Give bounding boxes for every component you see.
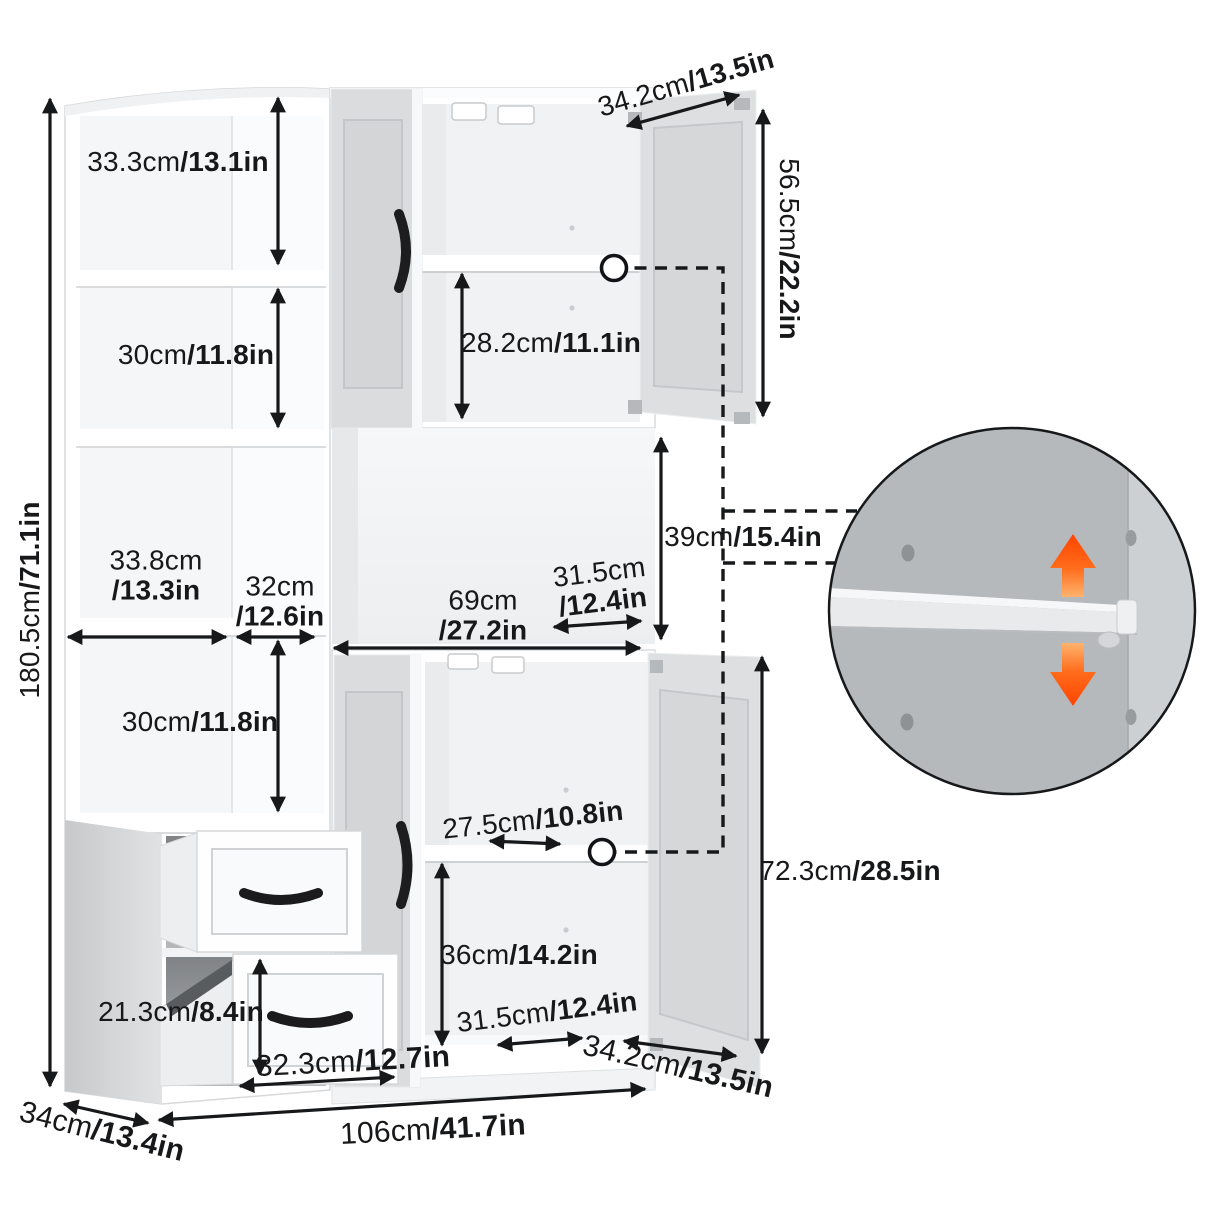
hinge-icon [650, 660, 663, 673]
dim-value-in: /12.6in [236, 601, 325, 631]
dim-value-cm: 106cm [339, 1113, 432, 1151]
shelf-pin-marker-icon [590, 840, 615, 865]
shelf-pin-marker-icon [602, 256, 627, 281]
tower-side-panel [65, 820, 162, 1104]
dim-fourth-shelf-space-label: 30cm/11.8in [122, 707, 278, 737]
dim-value-in: /14.2in [509, 939, 598, 970]
shelf-pin-hole-icon [1126, 530, 1137, 546]
dim-top-cabinet-height-label: 56.5cm/22.2in [774, 158, 804, 340]
dim-value-cm: 36cm [440, 939, 509, 970]
dimension-diagram-page: 180.5cm/71.1in 33.3cm/13.1in 30cm/11.8in… [0, 0, 1214, 1214]
dim-value-cm: 32cm [236, 571, 325, 601]
dim-second-shelf-space-label: 30cm/11.8in [118, 340, 274, 370]
dim-upper-shelf-space-label: 33.3cm/13.1in [87, 147, 269, 177]
dim-hutch-opening-height-label: 39cm/15.4in [664, 522, 822, 552]
dim-value-cm: 32.3cm [255, 1045, 356, 1083]
dim-right-cubby-width-label: 32cm/12.6in [236, 571, 325, 630]
dim-value-in: /15.4in [733, 521, 822, 552]
dim-value-in: /41.7in [430, 1108, 526, 1146]
dim-value-in: /13.1in [180, 146, 269, 177]
dim-value-in: /11.1in [554, 327, 641, 358]
dim-value-in: /11.8in [187, 339, 274, 370]
dim-value-in: /28.5in [852, 855, 941, 886]
dim-bottom-space-height-label: 36cm/14.2in [440, 940, 598, 970]
hinge-icon [628, 400, 642, 414]
dim-value-cm: 21.3cm [98, 996, 191, 1027]
drawer-top [160, 831, 362, 952]
dim-value-in: /8.4in [191, 996, 264, 1027]
hinge-plate-icon [452, 103, 486, 120]
dim-value-cm: 30cm [122, 706, 191, 737]
dim-top-cabinet-shelf-space-label: 28.2cm/11.1in [461, 328, 641, 358]
dim-left-cubby-width-label: 33.8cm/13.3in [109, 545, 202, 604]
dim-value-cm: 39cm [664, 521, 733, 552]
hinge-icon [734, 98, 750, 110]
hinge-plate-icon [498, 106, 534, 124]
dim-drawer-height-label: 21.3cm/8.4in [98, 997, 264, 1027]
dim-value-in: /12.7in [355, 1040, 451, 1078]
dim-bottom-door-height-label: 72.3cm/28.5in [759, 856, 941, 886]
dim-value-cm: 33.8cm [109, 545, 202, 575]
shelf-pin-hole-icon [902, 545, 915, 562]
dim-hutch-opening-depth-label: 31.5cm/12.4in [551, 552, 651, 622]
dim-value-in: /27.2in [439, 615, 528, 645]
dim-value-cm: 28.2cm [461, 327, 554, 358]
hinge-plate-icon [492, 657, 524, 673]
hinge-plate-icon [448, 654, 478, 669]
dim-value-in: /22.2in [774, 251, 805, 340]
top-left-door [331, 89, 422, 428]
dim-value-cm: 180.5cm [14, 590, 45, 699]
top-right-door [628, 90, 756, 424]
top-cabinet [330, 88, 756, 428]
dim-value-in: /13.3in [109, 575, 202, 605]
hinge-icon [734, 412, 750, 424]
zoom-inset-circle [829, 428, 1198, 794]
dim-value-in: /11.8in [191, 706, 278, 737]
dim-value-cm: 72.3cm [759, 855, 852, 886]
shelf-pin-hole-icon [901, 714, 914, 731]
dim-value-cm: 30cm [118, 339, 187, 370]
dim-value-cm: 69cm [439, 585, 528, 615]
shelf-pin-hole-icon [1126, 709, 1137, 725]
dim-value-cm: 33.3cm [87, 146, 180, 177]
dim-value-in: /71.1in [14, 501, 45, 590]
bottom-right-door [648, 653, 760, 1088]
dim-value-cm: 56.5cm [774, 158, 805, 251]
dim-hutch-opening-width-label: 69cm/27.2in [439, 585, 528, 644]
dim-overall-height-label: 180.5cm/71.1in [15, 501, 45, 698]
